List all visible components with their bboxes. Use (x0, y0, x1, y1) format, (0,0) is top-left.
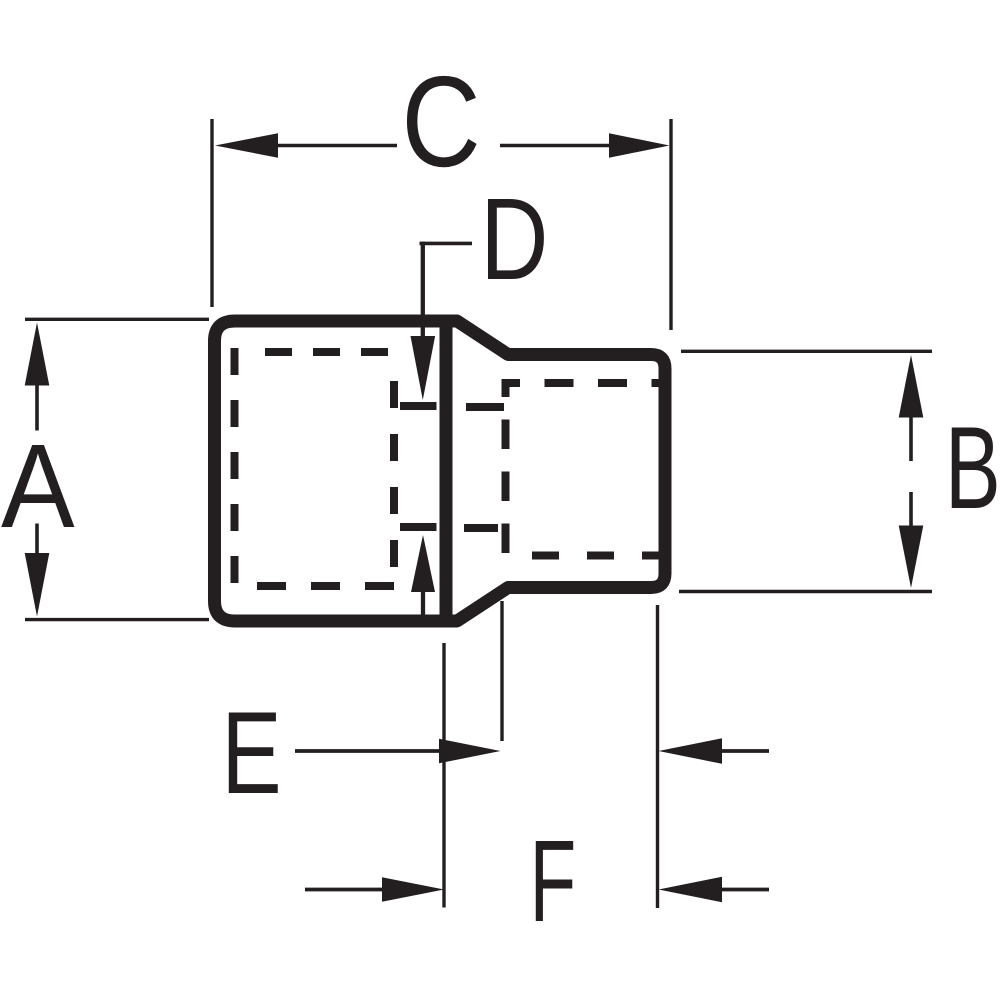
svg-text:D: D (480, 175, 548, 304)
svg-text:F: F (530, 816, 577, 946)
svg-text:E: E (221, 688, 281, 819)
svg-text:B: B (945, 402, 1000, 533)
svg-text:C: C (401, 51, 480, 194)
